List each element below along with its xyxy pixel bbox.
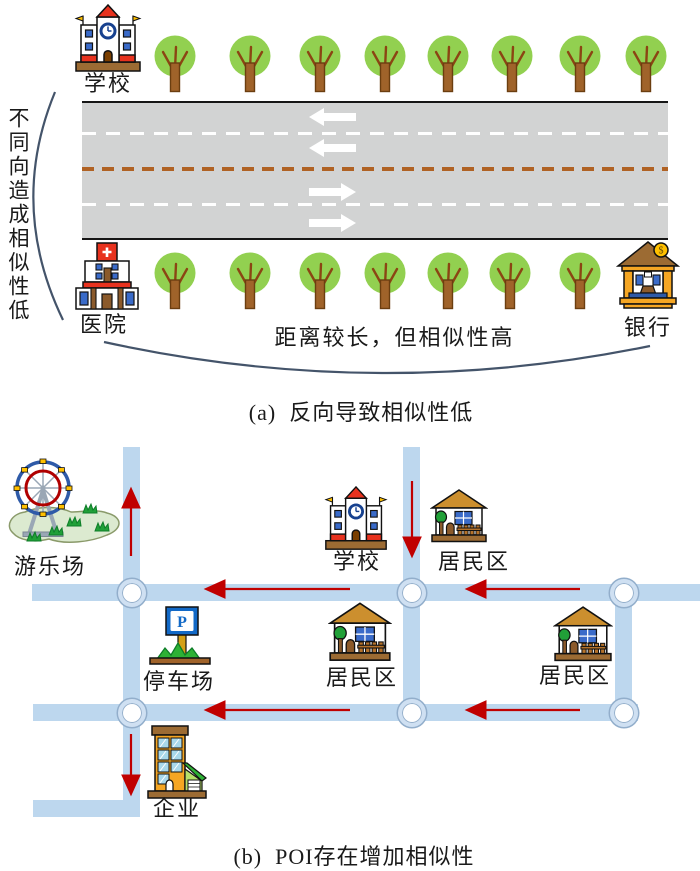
- road: [82, 101, 668, 240]
- residential-icon: [553, 606, 613, 662]
- tree-icon: [361, 35, 409, 93]
- residential-label: 居民区: [530, 664, 620, 688]
- tree-icon: [556, 252, 604, 310]
- tree-icon: [622, 35, 670, 93]
- residential-label: 居民区: [429, 550, 519, 574]
- bank-icon: [616, 241, 680, 311]
- parking-icon: [143, 606, 215, 668]
- lane-marking-white-bottom: [82, 203, 668, 206]
- intersection-node: [610, 579, 638, 607]
- arc-note: 距离较长，但相似性高: [262, 326, 527, 350]
- amusement-park-icon: [3, 452, 128, 557]
- lane-marking-white-top: [82, 132, 668, 135]
- amusement-park-label: 游乐场: [5, 555, 95, 579]
- school-icon: [73, 4, 143, 74]
- panel-b-caption: (b) POI存在增加相似性: [180, 839, 528, 871]
- school-label: 学校: [322, 550, 392, 574]
- enterprise-label: 企业: [146, 797, 208, 821]
- intersection-node: [398, 699, 426, 727]
- tree-icon: [151, 35, 199, 93]
- residential-icon: [328, 602, 392, 662]
- panel-a-caption: (a) 反向导致相似性低: [181, 395, 541, 427]
- enterprise-icon: [146, 725, 208, 799]
- school-label: 学校: [73, 72, 143, 96]
- panel-a: 不同向造成相似性低 学校 医院 银行 距离较长，但相似性高 (a) 反向导致相似…: [0, 0, 700, 430]
- tree-icon: [486, 252, 534, 310]
- hospital-label: 医院: [69, 313, 139, 337]
- lane-center-line: [82, 167, 668, 171]
- school-icon: [323, 486, 389, 552]
- bank-label: 银行: [615, 316, 681, 340]
- tree-icon: [296, 252, 344, 310]
- residential-label: 居民区: [317, 666, 407, 690]
- tree-icon: [226, 35, 274, 93]
- parking-label: 停车场: [133, 670, 225, 694]
- tree-icon: [556, 35, 604, 93]
- tree-icon: [226, 252, 274, 310]
- intersection-node: [398, 579, 426, 607]
- tree-icon: [424, 35, 472, 93]
- figure-road-similarity: { "figure": { "panel_a": { "caption": "(…: [0, 0, 700, 869]
- intersection-node: [610, 699, 638, 727]
- tree-icon: [296, 35, 344, 93]
- intersection-node: [118, 699, 146, 727]
- tree-icon: [151, 252, 199, 310]
- tree-icon: [361, 252, 409, 310]
- residential-icon: [430, 489, 488, 543]
- intersection-node: [118, 579, 146, 607]
- tree-icon: [488, 35, 536, 93]
- tree-icon: [424, 252, 472, 310]
- hospital-icon: [74, 242, 140, 310]
- panel-a-side-note: 不同向造成相似性低: [3, 107, 33, 323]
